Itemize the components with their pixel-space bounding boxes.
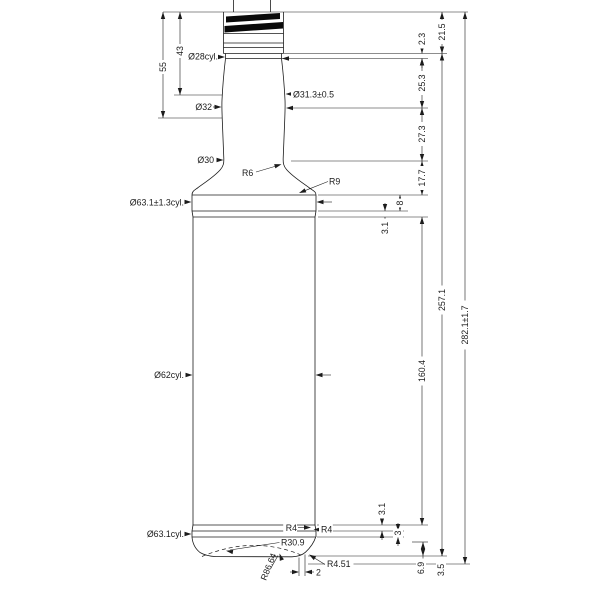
dim-17-7: 17.7 <box>417 169 427 186</box>
dim-3: 3 <box>393 530 403 535</box>
dim-25-3: 25.3 <box>417 74 427 91</box>
label-radius-6: R6 <box>242 168 253 178</box>
dim-3-5: 3.5 <box>436 564 446 576</box>
dim-55: 55 <box>158 62 168 72</box>
drawing-canvas: 554321.5257.1282.1±1.725.327.317.78160.4… <box>0 0 600 600</box>
label-radius-4-right: R4 <box>321 525 332 535</box>
dim-2-3: 2.3 <box>417 33 427 45</box>
label-radius-30-9: R30.9 <box>281 538 305 548</box>
label-diameter-63-1-top: Ø63.1±1.3cyl. <box>130 198 184 208</box>
label-diameter-31-3: Ø31.3±0.5 <box>293 90 334 100</box>
label-diameter-30: Ø30 <box>197 155 214 165</box>
label-diameter-32: Ø32 <box>195 102 212 112</box>
label-radius-4-left: R4 <box>286 523 297 533</box>
label-diameter-62: Ø62cyl. <box>154 370 184 380</box>
label-radius-4-51: R4.51 <box>327 559 351 569</box>
dim-160-4: 160.4 <box>417 360 427 382</box>
dim-27-3: 27.3 <box>417 125 427 142</box>
dim-3-1-bottom: 3.1 <box>377 503 387 515</box>
dim-8: 8 <box>395 200 405 205</box>
bottle-technical-drawing: 554321.5257.1282.1±1.725.327.317.78160.4… <box>0 0 600 600</box>
dim-3-1-top: 3.1 <box>380 222 390 234</box>
dim-6-9: 6.9 <box>416 562 426 574</box>
dim-282-1: 282.1±1.7 <box>460 305 470 344</box>
label-diameter-28: Ø28cyl. <box>188 52 218 62</box>
label-radius-9: R9 <box>329 177 340 187</box>
dim-257-1: 257.1 <box>437 289 447 311</box>
label-diameter-63-1-bottom: Ø63.1cyl. <box>147 529 184 539</box>
label-width-2: 2 <box>316 568 321 578</box>
dim-43: 43 <box>175 46 185 56</box>
dim-21-5: 21.5 <box>437 23 447 40</box>
